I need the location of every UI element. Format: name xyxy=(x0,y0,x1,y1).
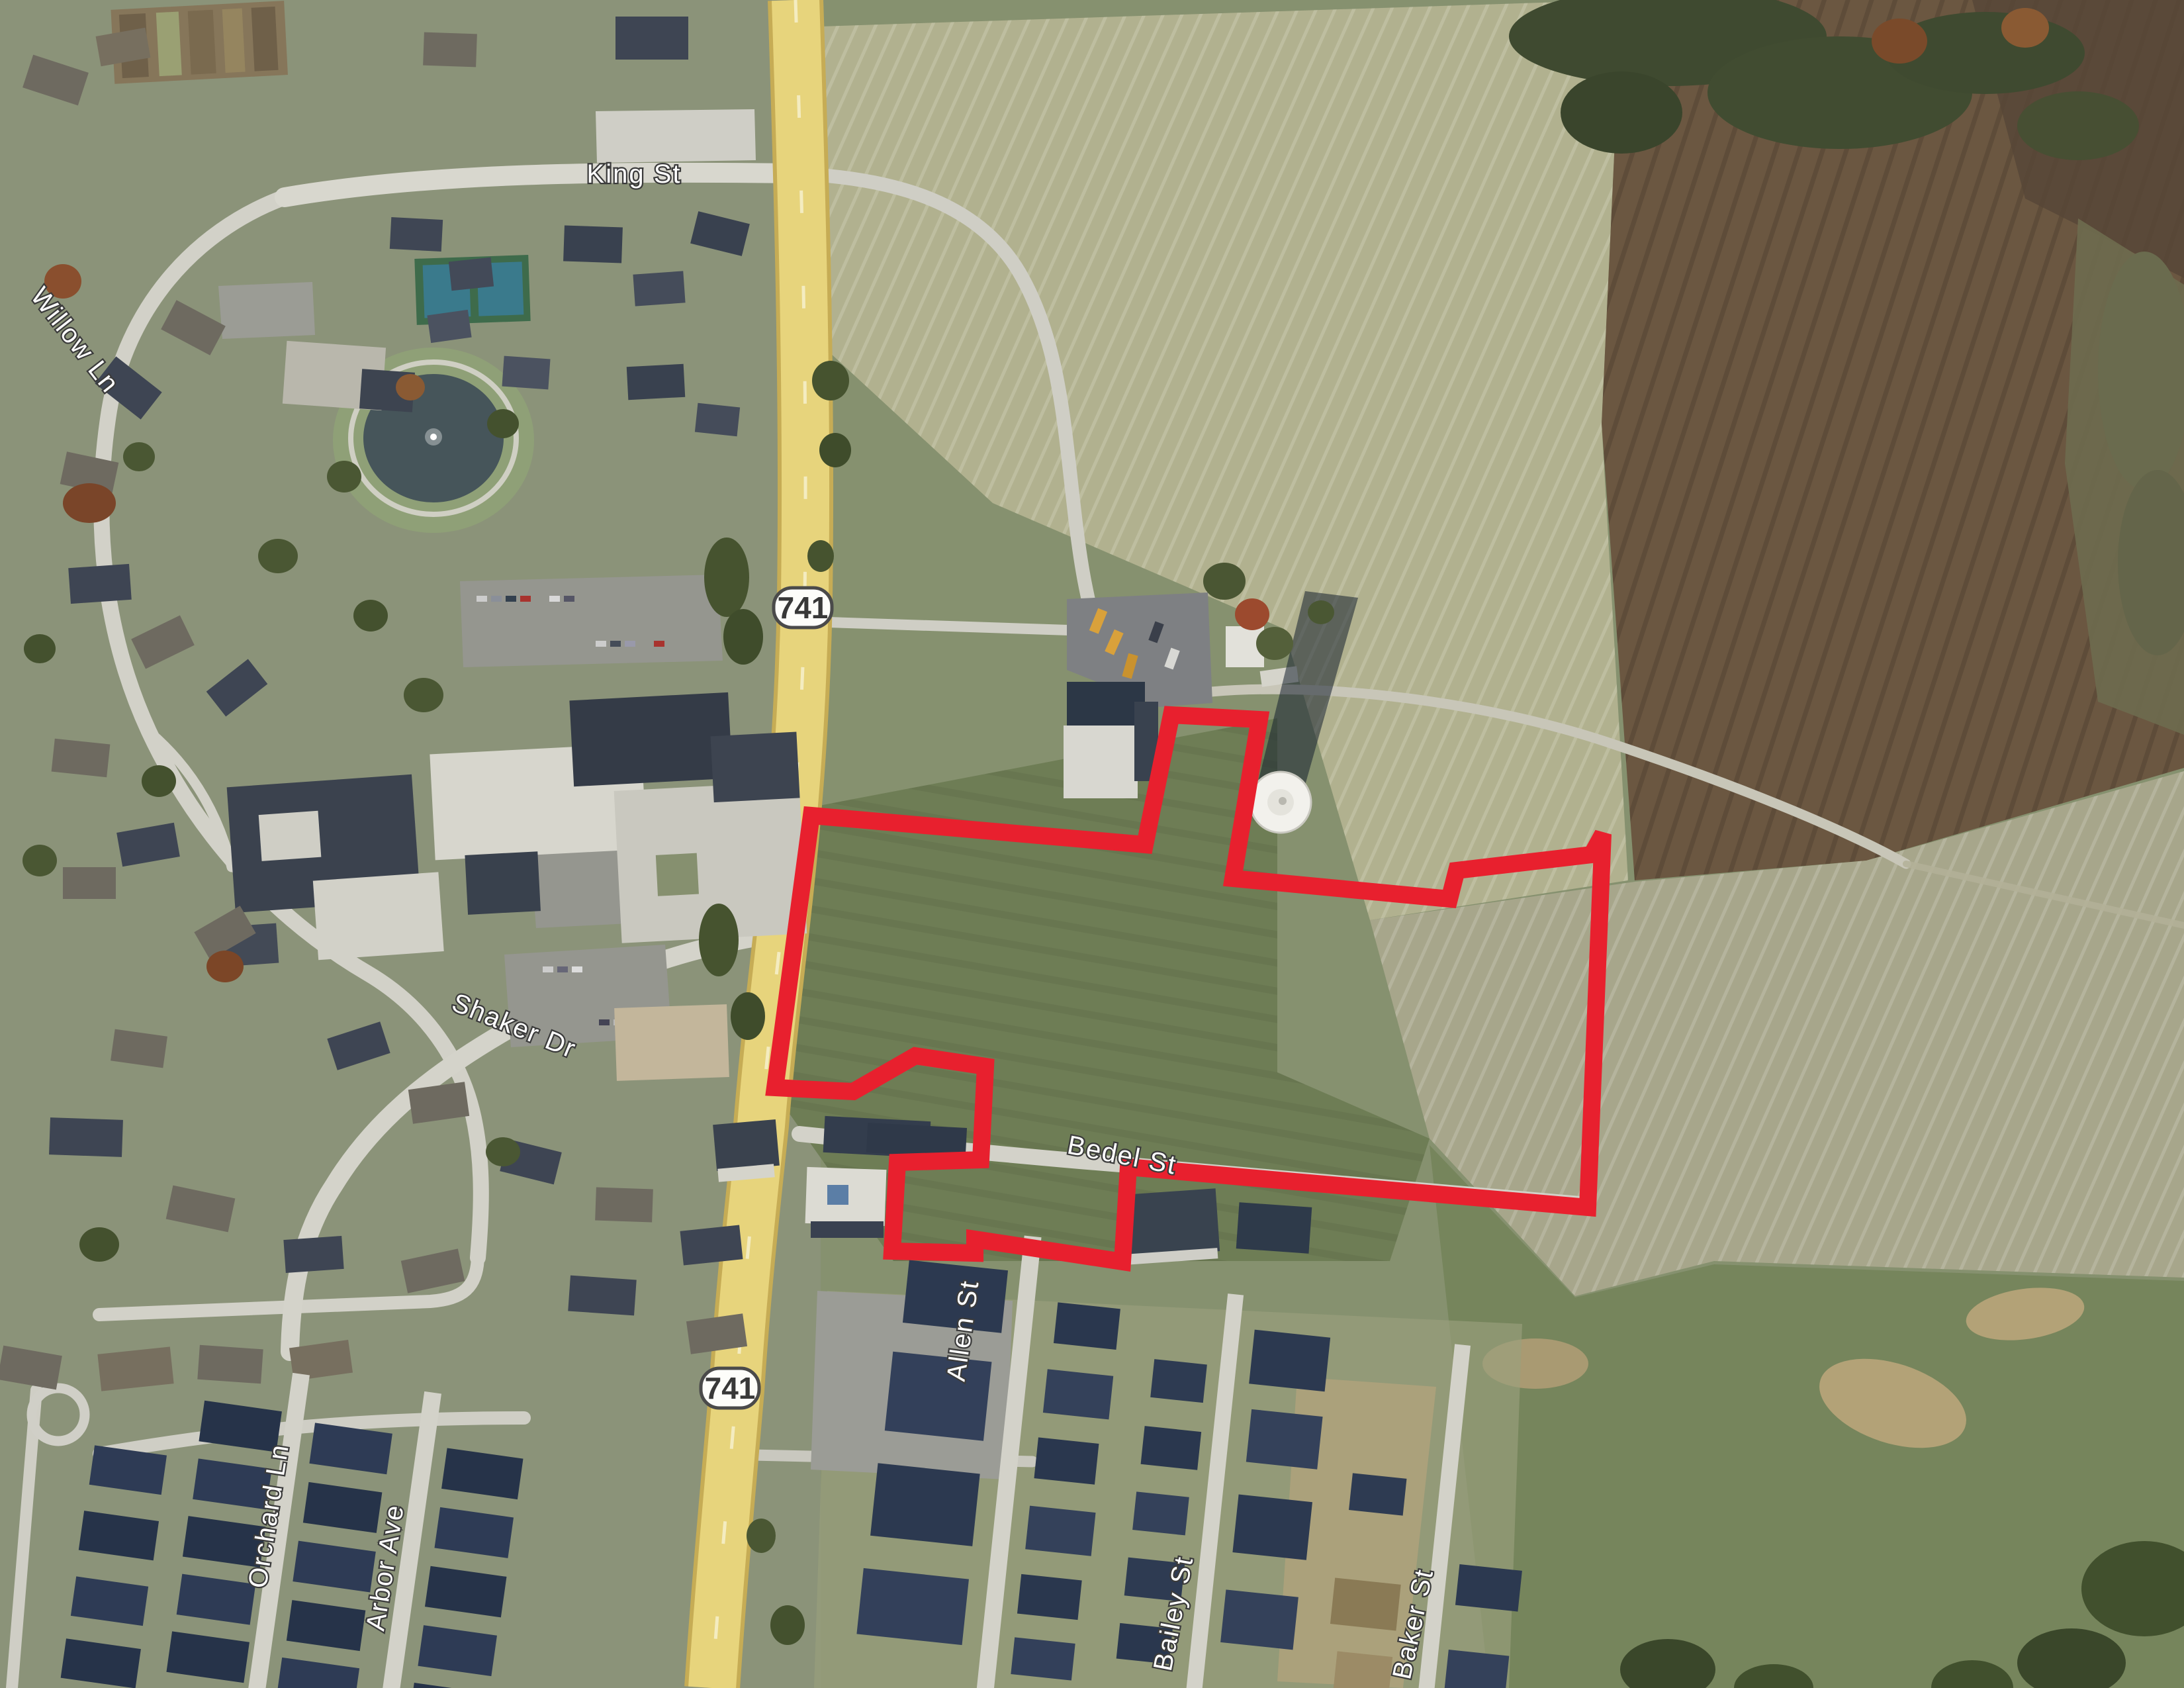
tree xyxy=(1308,600,1334,624)
satellite-map[interactable]: King St Willow Ln Shaker Dr Bedel St All… xyxy=(0,0,2184,1688)
map-canvas[interactable]: King St Willow Ln Shaker Dr Bedel St All… xyxy=(0,0,2184,1688)
parking-west xyxy=(218,282,315,339)
building-roof xyxy=(1123,1188,1220,1258)
label-king-st: King St xyxy=(587,160,682,189)
factory-building xyxy=(1064,682,1158,798)
parking-north xyxy=(460,575,723,667)
tree-fall xyxy=(1235,598,1269,630)
parking-king xyxy=(596,109,756,163)
route-shield-741-south: 741 xyxy=(701,1368,759,1408)
fountain xyxy=(430,434,437,440)
tree xyxy=(1203,563,1246,600)
tree xyxy=(1256,627,1293,660)
school-wing xyxy=(811,1221,884,1238)
building-roof xyxy=(1236,1202,1312,1254)
water-tower-vent xyxy=(1279,797,1287,805)
skylight xyxy=(827,1185,848,1205)
route-shield-741-north: 741 xyxy=(774,588,832,628)
shield-text: 741 xyxy=(705,1371,756,1405)
shield-text: 741 xyxy=(778,590,829,625)
